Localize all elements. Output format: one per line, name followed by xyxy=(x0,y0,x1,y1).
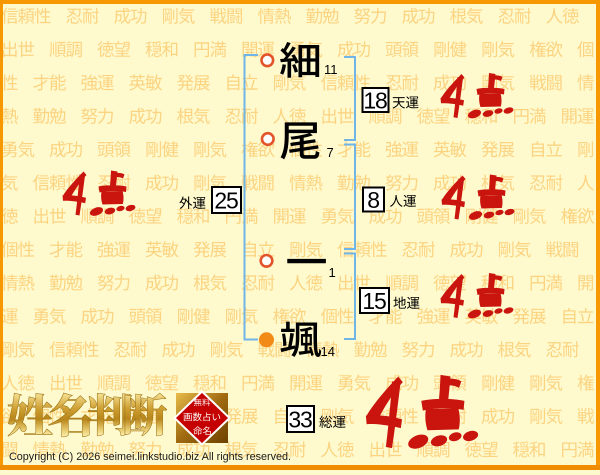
svg-text:15: 15 xyxy=(362,288,386,314)
svg-text:25: 25 xyxy=(214,187,238,213)
svg-text:18: 18 xyxy=(363,87,387,113)
svg-text:Copyright (C) 2026 seimei.link: Copyright (C) 2026 seimei.linkstudio.biz… xyxy=(9,451,291,463)
svg-text:33: 33 xyxy=(288,406,312,432)
svg-text:8: 8 xyxy=(367,187,379,213)
svg-text:7: 7 xyxy=(327,145,334,160)
svg-text:1: 1 xyxy=(329,265,336,280)
svg-text:14: 14 xyxy=(321,344,335,359)
svg-text:11: 11 xyxy=(324,62,338,77)
